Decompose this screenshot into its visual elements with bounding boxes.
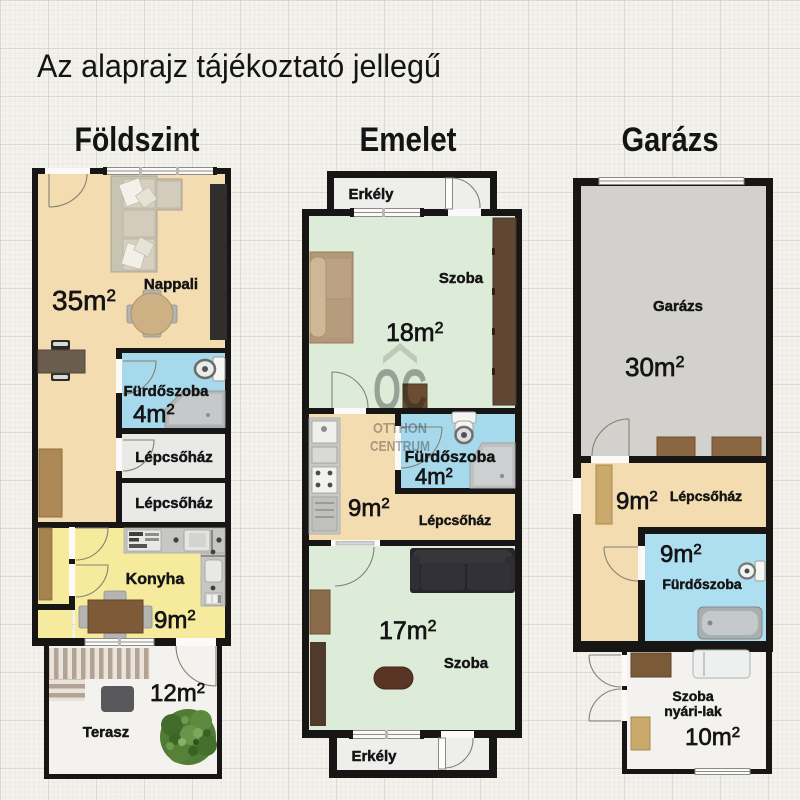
svg-text:Szoba: Szoba [439, 270, 484, 287]
svg-text:Földszint: Földszint [75, 121, 200, 159]
svg-text:Garázs: Garázs [653, 298, 703, 315]
svg-text:Emelet: Emelet [360, 121, 457, 159]
svg-text:Lépcsőház: Lépcsőház [670, 488, 742, 504]
svg-text:CENTRUM: CENTRUM [370, 438, 430, 455]
svg-text:Terasz: Terasz [83, 724, 129, 741]
svg-text:Lépcsőház: Lépcsőház [135, 449, 213, 466]
svg-text:Szoba: Szoba [672, 688, 713, 704]
svg-text:OTTHON: OTTHON [373, 420, 427, 437]
svg-text:Az alaprajz tájékoztató jelleg: Az alaprajz tájékoztató jellegű [37, 48, 441, 84]
svg-text:Nappali: Nappali [144, 276, 198, 293]
svg-text:Szoba: Szoba [444, 655, 489, 672]
svg-text:OC: OC [373, 358, 427, 423]
svg-text:Erkély: Erkély [348, 186, 394, 203]
svg-text:Fürdőszoba: Fürdőszoba [662, 576, 742, 592]
svg-text:nyári-lak: nyári-lak [664, 703, 722, 719]
svg-text:Erkély: Erkély [351, 748, 397, 765]
svg-text:Lépcsőház: Lépcsőház [135, 495, 213, 512]
svg-text:Lépcsőház: Lépcsőház [419, 512, 491, 528]
svg-text:Konyha: Konyha [126, 571, 185, 588]
svg-text:Fürdőszoba: Fürdőszoba [124, 383, 210, 400]
svg-text:35m2: 35m2 [52, 285, 116, 316]
svg-text:Garázs: Garázs [622, 121, 719, 159]
